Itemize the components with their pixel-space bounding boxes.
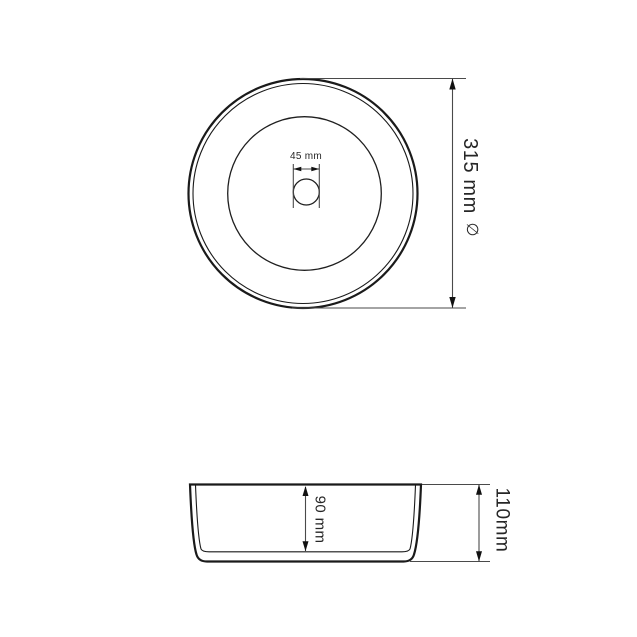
inner-depth-dimension-label: 90 mm [312, 496, 329, 544]
side-view: 90 mm 110mm [190, 485, 512, 562]
arrow-down-icon [303, 541, 309, 551]
inner-depth-dimension: 90 mm [303, 486, 329, 551]
drain-hole-circle [293, 179, 319, 205]
arrow-left-icon [293, 167, 301, 171]
basin-technical-drawing: 45 mm 315 mm ∅ 9 [0, 0, 637, 637]
diameter-dimension: 315 mm ∅ [292, 79, 481, 309]
arrow-right-icon [311, 167, 319, 171]
basin-outer-rim-circle [189, 79, 418, 308]
arrow-up-icon [476, 485, 482, 495]
arrow-up-icon [449, 79, 455, 90]
arrow-up-icon [303, 486, 309, 496]
drawing-sheet: 45 mm 315 mm ∅ 9 [0, 0, 637, 637]
diameter-symbol-icon: ∅ [463, 223, 480, 237]
overall-height-dimension: 110mm [410, 485, 512, 562]
drain-dimension-label: 45 mm [290, 151, 322, 162]
top-view: 45 mm 315 mm ∅ [189, 79, 482, 309]
basin-bowl-circle [228, 117, 382, 271]
diameter-dimension-label: 315 mm [459, 138, 481, 214]
overall-height-dimension-label: 110mm [491, 488, 512, 553]
arrow-down-icon [449, 297, 455, 308]
arrow-down-icon [476, 551, 482, 561]
